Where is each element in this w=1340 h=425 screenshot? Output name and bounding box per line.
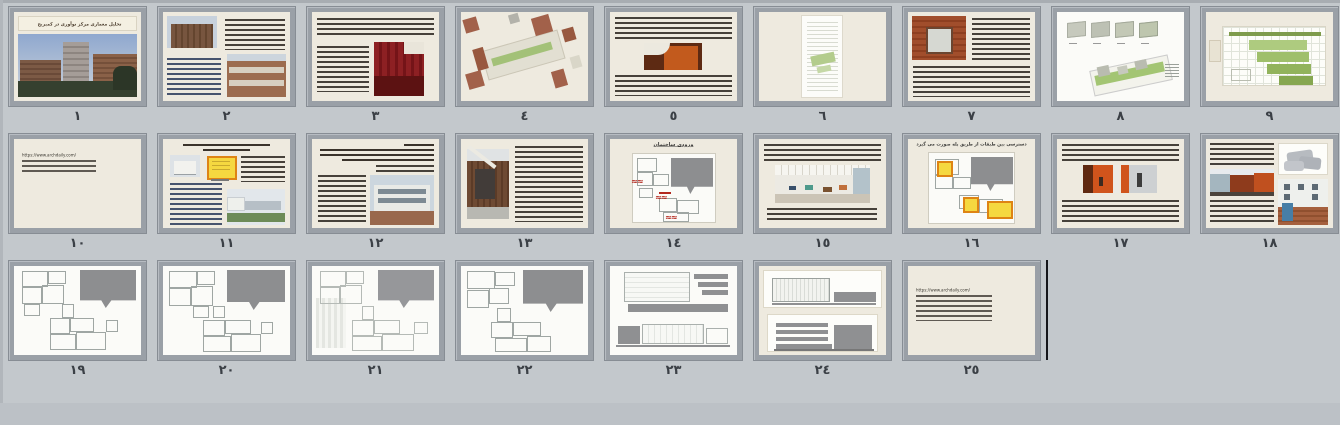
photo-red-wall (1230, 175, 1254, 193)
plan-room (320, 287, 340, 304)
plan-room (203, 336, 231, 352)
massing-diagram-2 (1091, 21, 1110, 38)
plan-room (346, 271, 364, 284)
slide-2-canvas (163, 12, 290, 101)
slide-number: ١٢ (306, 236, 445, 251)
entrance-arrow-icon: ≈≈ (631, 178, 642, 186)
plan-room (497, 308, 511, 322)
massing-diagram-3 (1115, 21, 1134, 38)
photo-band-2 (229, 80, 284, 86)
caption-line (211, 179, 229, 181)
plan-room (70, 318, 94, 332)
entrance-arrow-icon: ≈≈ (655, 194, 666, 202)
slide-thumbnail-18[interactable] (1200, 133, 1339, 234)
slide-sorter-view: تحلیل معماری مرکز نوآوری در کمبریج ١ (0, 0, 1340, 425)
slide-23-canvas (610, 266, 737, 355)
paragraph-top (317, 18, 434, 36)
plan-room (50, 318, 70, 334)
plan-room (197, 271, 215, 285)
text-line (320, 154, 434, 156)
slide-22-canvas (461, 266, 588, 355)
slide-number: ٢٢ (455, 363, 594, 378)
axon-light-plate (570, 55, 583, 69)
city-photo (227, 189, 285, 225)
elevation-slab (698, 282, 728, 287)
photo-ground (467, 207, 509, 219)
slide-number: ١٠ (8, 236, 147, 251)
text-line (342, 159, 434, 161)
slide-thumbnail-12[interactable] (306, 133, 445, 234)
plan-room (48, 271, 66, 284)
source-url: https://www.archdaily.com/ (22, 153, 102, 159)
office-interior-photo (775, 165, 870, 203)
photo-base (1210, 192, 1274, 196)
plan-room (169, 288, 191, 306)
photo-window (926, 27, 953, 54)
plan-room (62, 304, 74, 318)
slide-number: ٣ (306, 109, 445, 124)
massing-diagram-1 (1067, 21, 1086, 38)
slide-25-canvas: https://www.archdaily.com/ (908, 266, 1035, 355)
photo-dark-seats (374, 76, 424, 96)
paragraph-right (515, 146, 583, 222)
title-line-2 (203, 149, 250, 151)
axon-brick-block (465, 70, 485, 90)
photo-glass (1210, 174, 1230, 193)
plan-room (953, 177, 971, 189)
elevation-slab (702, 290, 728, 295)
slide-thumbnail-10[interactable]: https://www.archdaily.com/ (8, 133, 147, 234)
ground-line (616, 345, 730, 347)
building-photo (370, 175, 434, 225)
photo-furniture (839, 185, 847, 190)
slide-thumbnail-19[interactable] (8, 260, 147, 361)
facade-photo (1278, 179, 1328, 225)
photo-white-corner (404, 42, 424, 54)
elevation-panel-top (763, 270, 882, 308)
photo-figure (1137, 173, 1142, 187)
photo-tree-right (113, 66, 137, 90)
photo-sky (227, 54, 286, 61)
plan-room (261, 322, 273, 334)
slide-4-canvas (461, 12, 588, 101)
green-top-bar (1229, 32, 1321, 36)
slide-title: تحلیل معماری مرکز نوآوری در کمبریج (21, 17, 138, 32)
photo-glass (475, 169, 495, 199)
slide-number: ٢٥ (902, 363, 1041, 378)
plan-room (352, 336, 382, 351)
slide-thumbnail-25[interactable]: https://www.archdaily.com/ (902, 260, 1041, 361)
slide-thumbnail-24[interactable] (753, 260, 892, 361)
elevation-panel-bottom (767, 314, 878, 352)
paragraph-bottom (913, 66, 1030, 97)
slide-24-canvas (759, 266, 886, 355)
slide-thumbnail-21[interactable] (306, 260, 445, 361)
plan-room (231, 334, 261, 352)
plan-room (467, 290, 489, 308)
photo-band-1 (229, 67, 284, 73)
annotation-lines (1165, 64, 1179, 77)
slide-13-canvas (461, 139, 588, 228)
slide-thumbnail-6[interactable] (753, 6, 892, 107)
plan-room (191, 286, 213, 306)
photo-window (853, 168, 870, 194)
text-block-left (318, 175, 366, 225)
slide-14-canvas: ورودی ساختمان ≈≈ ≈≈ ≈≈ (610, 139, 737, 228)
paragraph-right (376, 165, 434, 173)
plan-room (414, 322, 428, 334)
text-line (320, 149, 434, 151)
photo-furniture (805, 185, 813, 190)
photo-floor (775, 194, 870, 203)
spec-bullet-list (225, 19, 285, 50)
slide-thumbnail-5[interactable] (604, 6, 743, 107)
plan-gray-mass (80, 270, 136, 308)
slide-thumbnail-1[interactable]: تحلیل معماری مرکز نوآوری در کمبریج (8, 6, 147, 107)
paragraph-bottom-left (1210, 200, 1274, 224)
courtyard-photo (1210, 169, 1274, 196)
plan-lines (212, 161, 230, 173)
slide-12-canvas (312, 139, 439, 228)
plan-room (653, 174, 669, 186)
slide-20-canvas (163, 266, 290, 355)
highlighted-plan-box (207, 156, 237, 180)
floor-slab (776, 330, 828, 334)
orange-interior-photo-left (1083, 165, 1119, 193)
slide-thumbnail-4[interactable] (455, 6, 594, 107)
slide-thumbnail-22[interactable] (455, 260, 594, 361)
slide-number: ٩ (1200, 109, 1339, 124)
plan-room (106, 320, 118, 332)
outline-box (1231, 69, 1251, 81)
slide-number: ١٧ (1051, 236, 1190, 251)
brick-facade-photo (912, 16, 966, 60)
plan-gray-mass (227, 270, 285, 310)
caption-dash (1117, 43, 1125, 44)
slide-number: ١٤ (604, 236, 743, 251)
stairs-plan-panel (928, 152, 1015, 224)
text-block-left (167, 58, 221, 96)
side-sketch (1209, 40, 1221, 62)
slide-6-canvas (759, 12, 886, 101)
hatched-area (316, 298, 346, 348)
axon-brick-block (462, 16, 479, 33)
slide-number: ٢ (157, 109, 296, 124)
elevation-base (628, 304, 728, 312)
plan-room (42, 285, 64, 304)
elevation-gray-wing (834, 292, 876, 302)
slide-thumbnail-16[interactable]: دسترسی بین طبقات از طریق پله صورت می گیر… (902, 133, 1041, 234)
slide-thumbnail-13[interactable] (455, 133, 594, 234)
plan-room (193, 306, 209, 318)
slide-thumbnail-11[interactable] (157, 133, 296, 234)
slide-number: ١٥ (753, 236, 892, 251)
photo-window (1312, 194, 1318, 200)
photo-furniture (823, 187, 832, 192)
photo-dark-band (1083, 165, 1093, 193)
green-step-2 (1257, 52, 1309, 62)
plan-room (352, 320, 374, 336)
red-interior-photo (374, 42, 424, 96)
entrance-plan-panel: ≈≈ ≈≈ ≈≈ (632, 153, 716, 223)
slide-21-canvas (312, 266, 439, 355)
plan-room (340, 285, 362, 304)
photo-trees (227, 213, 285, 222)
plan-room (50, 334, 76, 350)
slide-thumbnail-15[interactable] (753, 133, 892, 234)
slide-thumbnail-7[interactable] (902, 6, 1041, 107)
massing-blob (1284, 161, 1304, 171)
plan-room (495, 272, 515, 286)
photo-window (1312, 184, 1318, 190)
photo-figure (1099, 177, 1103, 186)
slide-9-canvas (1206, 12, 1333, 101)
slide-title: ورودی ساختمان (610, 142, 737, 149)
massing-sketch-panel (1278, 143, 1328, 175)
slide-thumbnail-9[interactable] (1200, 6, 1339, 107)
slide-18-canvas (1206, 139, 1333, 228)
photo-window (1298, 184, 1304, 190)
paragraph-bottom (615, 75, 732, 96)
slide-15-canvas (759, 139, 886, 228)
photo-building-shape (174, 161, 196, 175)
photo-brick-base (370, 211, 434, 225)
plan-gray-mass (971, 157, 1013, 191)
photo-white-building (227, 197, 245, 211)
photo-white-band (1113, 165, 1119, 193)
caption-dash (1141, 43, 1149, 44)
paragraph-bottom (1062, 200, 1179, 222)
source-url: https://www.archdaily.com/ (916, 288, 996, 294)
plan-room (203, 320, 225, 336)
slide-number: ٢٤ (753, 363, 892, 378)
bullet-list-right (241, 156, 285, 182)
plan-room (22, 287, 42, 304)
elevation-grid (642, 324, 704, 344)
slide-number: ١٣ (455, 236, 594, 251)
plan-room (24, 304, 40, 316)
elevation-slab (694, 274, 728, 279)
paragraph-bottom (317, 46, 369, 92)
slide-number: ١١ (157, 236, 296, 251)
plan-gray-mass (378, 270, 434, 308)
photo-window-band (378, 189, 426, 194)
slide-10-canvas: https://www.archdaily.com/ (14, 139, 141, 228)
axon-brick-block (561, 27, 576, 43)
slide-3-canvas (312, 12, 439, 101)
plan-room (495, 338, 527, 352)
entrance-arrow-icon: ≈≈ (665, 214, 676, 222)
diagram-panel (801, 15, 843, 98)
axon-brick-block (551, 69, 568, 89)
plan-room (382, 334, 414, 351)
plan-room (374, 320, 400, 334)
caption-dash (1069, 43, 1077, 44)
orange-interior-photo (644, 43, 702, 70)
plan-gray-mass (671, 158, 713, 194)
plan-room (513, 322, 541, 336)
paragraph-bottom (767, 208, 877, 221)
photo-window (1284, 194, 1290, 200)
entrance-photo (467, 149, 509, 219)
step-diagram-panel (1222, 26, 1326, 86)
source-text-lines (916, 295, 992, 321)
slide-16-canvas: دسترسی بین طبقات از طریق پله صورت می گیر… (908, 139, 1035, 228)
plan-room (935, 175, 953, 189)
building-photo-top (167, 16, 217, 48)
slide-number: ٢٣ (604, 363, 743, 378)
slide-11-canvas (163, 139, 290, 228)
plan-room (491, 322, 513, 338)
massing-diagram-4 (1139, 21, 1158, 38)
red-label (659, 192, 671, 194)
plan-room (637, 158, 657, 172)
interior-photo-right (1121, 165, 1157, 193)
slide-8-canvas (1057, 12, 1184, 101)
slide-7-canvas (908, 12, 1035, 101)
slide-title-bar: تحلیل معماری مرکز نوآوری در کمبریج (18, 16, 137, 31)
ground-line (772, 303, 876, 305)
photo-building (171, 24, 213, 48)
building-photo (18, 34, 137, 97)
elevation-block-left (618, 326, 640, 344)
photo-orange-wall (664, 46, 698, 70)
status-band (0, 403, 1340, 425)
slide-number: ٧ (902, 109, 1041, 124)
photo-furniture (789, 186, 796, 190)
plan-room (467, 271, 495, 289)
heading-line (404, 144, 434, 146)
slide-thumbnail-20[interactable] (157, 260, 296, 361)
slide-number: ١ (8, 109, 147, 124)
green-step-1 (1249, 40, 1307, 50)
elevation-outline-top (624, 272, 690, 302)
window-top-edge (0, 0, 1340, 3)
floor-slab (776, 323, 828, 327)
green-step-4 (1279, 76, 1313, 85)
axon-gray-block (508, 13, 520, 24)
plan-room (76, 332, 106, 350)
slide-number: ٥ (604, 109, 743, 124)
slide-title: دسترسی بین طبقات از طریق پله صورت می گیر… (908, 142, 1035, 148)
facade-photo-bottom (227, 54, 286, 97)
source-text-lines (22, 160, 96, 175)
white-building-photo (170, 155, 200, 177)
slide-number: ١٩ (8, 363, 147, 378)
slide-number: ٨ (1051, 109, 1190, 124)
paragraph-top (1062, 144, 1179, 161)
slide-number: ٢٠ (157, 363, 296, 378)
slide-thumbnail-14[interactable]: ورودی ساختمان ≈≈ ≈≈ ≈≈ (604, 133, 743, 234)
slide-17-canvas (1057, 139, 1184, 228)
green-step-3 (1267, 64, 1311, 74)
floor-slab (776, 337, 828, 341)
slide-thumbnail-17[interactable] (1051, 133, 1190, 234)
plan-gray-mass (523, 270, 583, 312)
plan-room (489, 288, 509, 304)
slide-thumbnail-3[interactable] (306, 6, 445, 107)
photo-blue-glass (1282, 203, 1293, 221)
title-line-1 (183, 144, 270, 146)
plan-room (527, 336, 551, 352)
plan-room (225, 320, 251, 334)
slide-1-canvas: تحلیل معماری مرکز نوآوری در کمبریج (14, 12, 141, 101)
caption-dash (1093, 43, 1101, 44)
slide-number: ٤ (455, 109, 594, 124)
paragraph-top (764, 144, 881, 161)
stair-highlight (963, 197, 979, 213)
slide-number: ٢١ (306, 363, 445, 378)
plan-room (213, 306, 225, 318)
slide-thumbnail-23[interactable] (604, 260, 743, 361)
slide-5-canvas (610, 12, 737, 101)
elevation-outline-right (706, 328, 728, 344)
photo-window-band (378, 198, 426, 203)
paragraph-top-left (1210, 143, 1274, 166)
text-block-right (972, 18, 1030, 60)
slide-number: ١٨ (1200, 236, 1339, 251)
insertion-cursor[interactable] (1046, 260, 1048, 360)
photo-orange-band (1121, 165, 1129, 193)
slide-19-canvas (14, 266, 141, 355)
text-block-left (170, 183, 222, 225)
photo-window (1284, 184, 1290, 190)
stair-highlight (987, 201, 1013, 219)
ground-line (774, 349, 874, 351)
elevation-gray-block (834, 325, 872, 349)
plan-room (639, 188, 653, 198)
photo-orange-wall (1254, 173, 1274, 193)
plan-room (362, 306, 374, 320)
slide-number: ١٦ (902, 236, 1041, 251)
slide-number: ٦ (753, 109, 892, 124)
slide-thumbnail-2[interactable] (157, 6, 296, 107)
paragraph-top (615, 17, 732, 40)
elevation-building (772, 278, 830, 302)
stair-highlight (937, 161, 953, 177)
slide-thumbnail-8[interactable] (1051, 6, 1190, 107)
window-left-edge (0, 0, 3, 425)
